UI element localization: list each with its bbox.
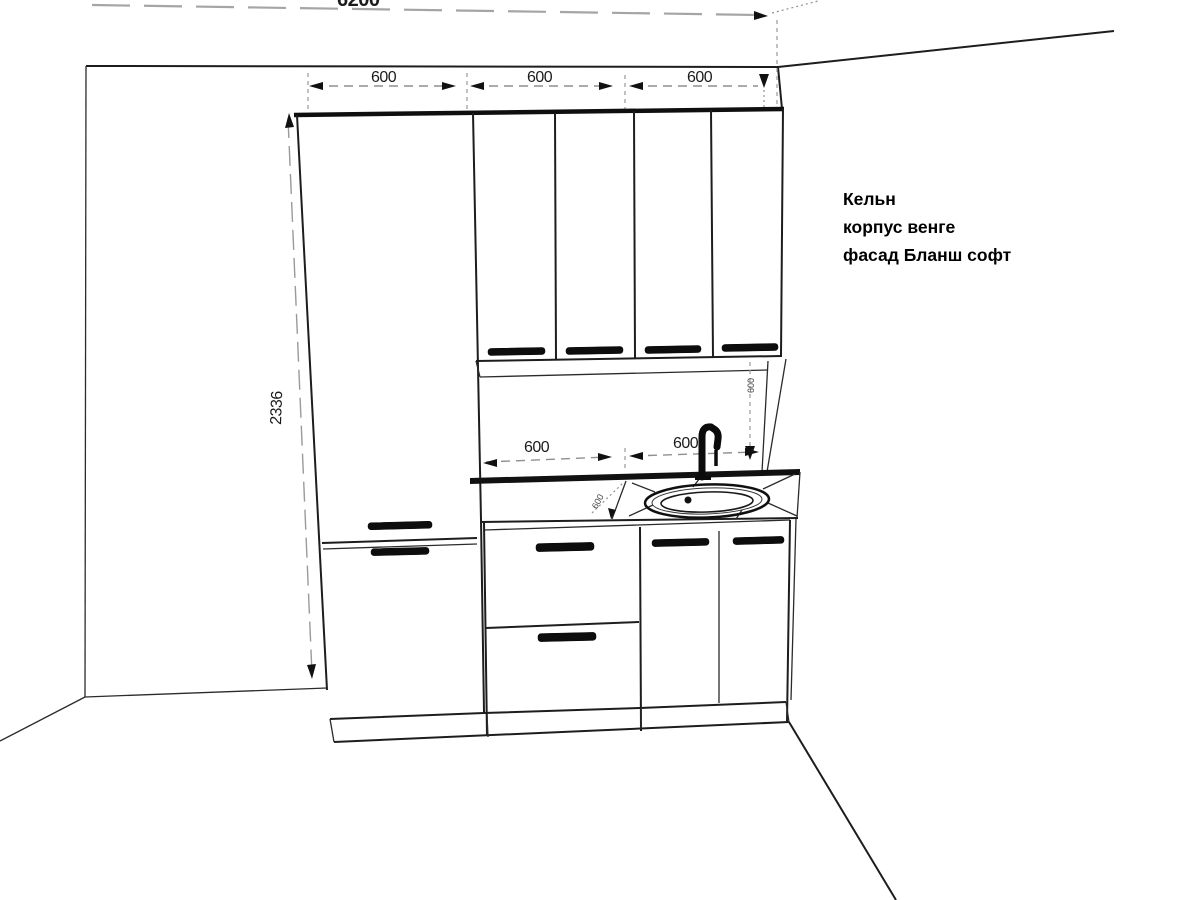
drawer-handle-top — [536, 542, 594, 552]
sink-drain — [685, 497, 692, 504]
tall-door-split-top — [322, 538, 477, 543]
upper-bottom-panel-line — [480, 370, 768, 377]
upper-door-handle-4 — [722, 343, 778, 351]
upper-door-handle-1 — [488, 347, 545, 355]
counter-width-label-1: 600 — [524, 439, 550, 456]
height-arrow-top — [285, 113, 294, 128]
countertop — [470, 469, 800, 522]
arrow-left-1 — [309, 82, 323, 90]
upper-width-label-1: 600 — [371, 69, 397, 86]
kitchen-drawing-page: 6200 600 600 600 2336 — [0, 0, 1200, 900]
wall-top-line-right — [778, 31, 1114, 67]
wall-corner-lower-b — [767, 359, 786, 472]
annotation-facade-color: фасад Бланш софт — [843, 245, 1012, 265]
sink — [629, 474, 797, 520]
upper-width-label-3: 600 — [687, 69, 713, 86]
wall-corner-left — [85, 66, 86, 697]
sink-corner-line-3 — [763, 474, 795, 489]
upper-right-edge — [781, 109, 783, 356]
overall-dim-arrow — [754, 11, 768, 20]
tall-upper-door-handle — [368, 521, 432, 530]
wall-top-line-left — [86, 66, 778, 67]
sink-base-door-handle-2 — [733, 536, 784, 544]
floor-line-left — [85, 688, 327, 697]
arrow-right-1 — [442, 82, 456, 90]
sink-base-door-handle-1 — [652, 538, 709, 546]
room-outline — [0, 31, 1114, 900]
upper-door-divider-1 — [555, 113, 556, 359]
arrow-down-3 — [759, 74, 769, 88]
dimension-cabinet-height: 2336 — [268, 113, 316, 679]
upper-door-divider-2 — [634, 111, 635, 358]
counter-dim-line-2 — [633, 452, 755, 456]
sink-corner-line-1 — [632, 483, 655, 492]
wall-corner-lower-a — [762, 361, 768, 472]
overall-dim-line — [92, 5, 758, 15]
counter-dim-line-1 — [486, 457, 608, 462]
tall-cabinet-right-edge — [473, 113, 484, 712]
base-bottom-edge — [330, 702, 786, 719]
sink-corner-line-4 — [768, 503, 797, 516]
dimension-overall-width: 6200 — [92, 0, 818, 20]
arrow-left-2 — [470, 82, 484, 90]
floor-line-far-left — [0, 697, 85, 741]
counter-arrow-left-2 — [629, 452, 643, 460]
overall-dim-ext — [772, 1, 818, 13]
upper-door-handle-3 — [645, 345, 701, 353]
backsplash-band — [470, 469, 800, 484]
faucet — [695, 427, 718, 478]
upper-door-divider-3 — [711, 110, 713, 357]
upper-width-label-2: 600 — [527, 69, 553, 86]
height-arrow-bottom — [307, 664, 316, 679]
tall-cabinet — [294, 109, 784, 712]
wall-corner-upper — [778, 67, 782, 109]
upper-bottom-edge — [476, 356, 782, 361]
annotation-block: Кельн корпус венге фасад Бланш софт — [843, 189, 1012, 265]
upper-cabinets — [476, 109, 783, 377]
dimension-splash-height: 600 — [745, 362, 756, 460]
base-right-edge — [787, 520, 790, 722]
counter-depth-label: 600 — [590, 492, 606, 510]
countertop-right-edge — [797, 472, 800, 518]
height-dim-line — [288, 118, 312, 674]
cabinet-elevation-drawing: 6200 600 600 600 2336 — [0, 0, 1200, 900]
plinth-bottom-edge — [334, 722, 789, 742]
annotation-body-color: корпус венге — [843, 217, 955, 237]
counter-width-label-2: 600 — [673, 435, 699, 452]
base-divider-mid — [640, 527, 641, 731]
drawer-divider — [486, 622, 639, 628]
upper-door-handle-2 — [566, 346, 623, 354]
counter-arrow-right-1 — [598, 453, 612, 461]
tall-lower-door-handle — [371, 547, 429, 556]
drawer-handle-bottom — [538, 632, 596, 642]
counter-arrow-left-1 — [483, 459, 497, 467]
floor-line-right — [789, 722, 896, 900]
base-right-panel-line — [791, 519, 796, 700]
annotation-model: Кельн — [843, 189, 896, 209]
splash-height-label: 600 — [746, 378, 756, 393]
plinth-left-edge — [330, 719, 334, 742]
tall-cabinet-left-edge — [297, 115, 327, 690]
overall-width-label: 6200 — [337, 0, 380, 11]
arrow-left-3 — [629, 82, 643, 90]
arrow-right-2 — [599, 82, 613, 90]
cabinet-height-label: 2336 — [268, 390, 286, 425]
